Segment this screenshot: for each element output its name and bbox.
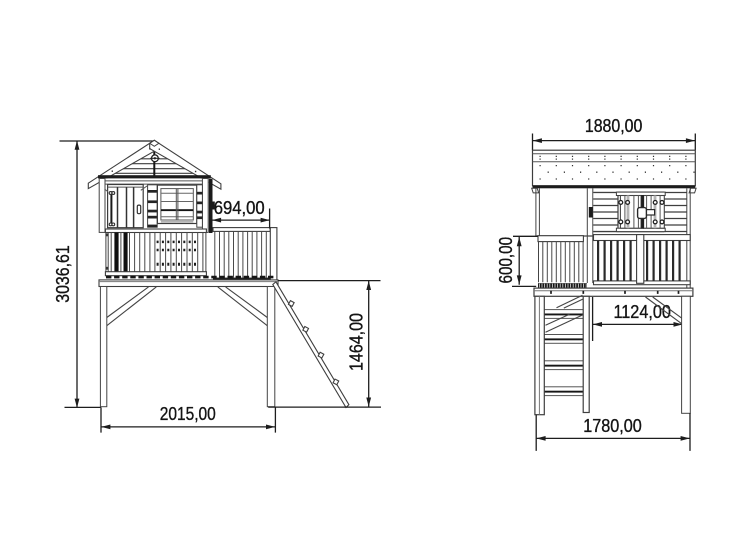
svg-text:1464,00: 1464,00 xyxy=(347,313,367,371)
svg-text:1880,00: 1880,00 xyxy=(585,116,643,136)
svg-text:3036,61: 3036,61 xyxy=(53,245,73,303)
svg-text:694,00: 694,00 xyxy=(214,198,265,218)
svg-text:600,00: 600,00 xyxy=(496,237,516,284)
svg-text:2015,00: 2015,00 xyxy=(160,404,216,424)
svg-text:1124,00: 1124,00 xyxy=(613,302,671,322)
svg-text:1780,00: 1780,00 xyxy=(583,416,642,436)
